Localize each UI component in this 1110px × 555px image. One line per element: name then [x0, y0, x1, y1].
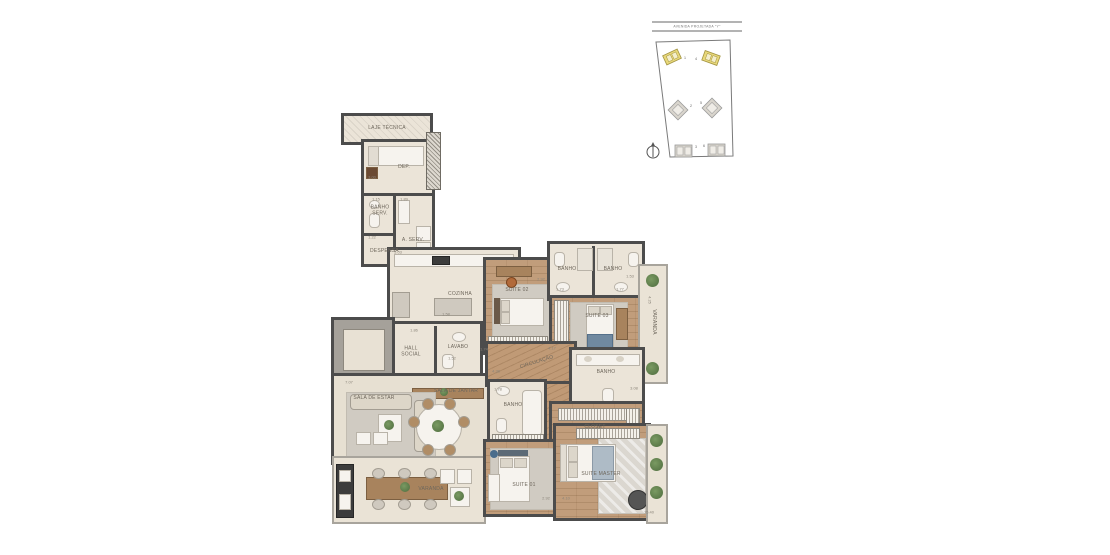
laje-tecnica-room — [344, 116, 430, 142]
suite01-lamp — [490, 450, 498, 458]
varanda-chair — [372, 468, 385, 479]
shower — [597, 248, 613, 271]
suite03-pillow — [588, 306, 600, 315]
cabinet-dep — [366, 167, 378, 179]
plant-terrace — [650, 486, 663, 499]
plant-sideboard — [440, 388, 448, 396]
suite03-wardrobe — [554, 300, 569, 348]
street-label: AVENIDA PROJETADA "Y" — [673, 25, 721, 29]
dining-chair — [422, 444, 434, 456]
kitchen-island — [434, 298, 472, 316]
dining-chair — [444, 444, 456, 456]
wall — [364, 193, 432, 196]
dining-chair — [444, 398, 456, 410]
plant-varanda-right — [646, 362, 659, 375]
washer — [416, 226, 431, 241]
varanda-chair — [424, 468, 437, 479]
bathtub — [522, 390, 542, 436]
varanda-armchair — [457, 469, 472, 484]
master-blanket — [592, 446, 614, 480]
building-1 — [663, 49, 682, 65]
suite-master-bench — [576, 428, 640, 439]
building-4-num: 4 — [695, 57, 697, 61]
dining-chair — [422, 398, 434, 410]
varanda-chair — [372, 499, 385, 510]
building-3-num: 3 — [695, 145, 697, 149]
circulation-floor — [488, 344, 574, 384]
toilet — [554, 252, 565, 267]
toilet — [628, 252, 639, 267]
toilet — [496, 418, 507, 433]
master-pillow — [568, 462, 578, 478]
building-2 — [668, 100, 688, 120]
dining-centerpiece — [432, 420, 444, 432]
sink — [614, 282, 628, 292]
plant-varanda-table — [400, 482, 410, 492]
pouf — [356, 432, 371, 445]
varanda-chair — [424, 499, 437, 510]
plant-terrace — [650, 434, 663, 447]
suite02-pillow — [501, 312, 510, 324]
sink-banho-serv — [369, 200, 380, 209]
building-5-num: 5 — [700, 101, 702, 105]
wall — [364, 233, 396, 236]
varanda-chair — [398, 468, 411, 479]
shower — [577, 248, 593, 271]
suite02-desk — [496, 266, 532, 277]
bbq-grill — [339, 470, 351, 482]
toilet-banho-serv — [369, 213, 380, 228]
plant-coffee-table — [384, 420, 394, 430]
sink — [584, 356, 592, 362]
toilet-lavabo — [442, 354, 454, 369]
elevator-car — [343, 329, 385, 371]
dining-chair — [408, 416, 420, 428]
site-key-plan: AVENIDA PROJETADA "Y" 1 4 2 5 — [630, 15, 760, 170]
dining-chair — [458, 416, 470, 428]
suite01-pillow — [514, 458, 527, 468]
toilet — [602, 388, 614, 403]
suite02-pillow — [501, 300, 510, 312]
sink — [496, 386, 510, 396]
north-arrow-icon — [647, 142, 659, 158]
technical-shaft — [426, 132, 441, 190]
sink — [616, 356, 624, 362]
plant-terrace — [650, 458, 663, 471]
building-4 — [702, 51, 720, 66]
bed-pillow — [368, 146, 379, 166]
suite03-pillow — [600, 306, 612, 315]
sofa — [350, 394, 412, 410]
plant-varanda — [454, 491, 464, 501]
bbq-sink — [339, 494, 351, 510]
building-6-num: 6 — [703, 144, 705, 148]
building-6 — [708, 144, 725, 156]
kitchen-cabinet — [392, 292, 410, 318]
sink — [556, 282, 570, 292]
plant-varanda-right — [646, 274, 659, 287]
master-pillow — [568, 446, 578, 462]
cooktop — [432, 256, 450, 265]
suite03-desk — [616, 308, 628, 340]
building-1-num: 1 — [684, 56, 686, 60]
building-2-num: 2 — [690, 104, 692, 108]
suite01-desk — [488, 474, 500, 502]
suite01-pillow — [500, 458, 513, 468]
suite03-blanket — [587, 334, 613, 350]
building-5 — [702, 98, 722, 118]
suite02-chair — [506, 277, 517, 288]
laundry-sink-counter — [398, 200, 410, 224]
sink-lavabo — [452, 332, 466, 342]
varanda-chair — [398, 499, 411, 510]
varanda-armchair — [440, 469, 455, 484]
building-3 — [675, 145, 692, 157]
master-armchair — [628, 490, 648, 510]
floor-plan-page: LAJE TÉCNICADEP.BANHO SERV.A. SERV.DESPE… — [0, 0, 1110, 555]
pouf — [373, 432, 388, 445]
